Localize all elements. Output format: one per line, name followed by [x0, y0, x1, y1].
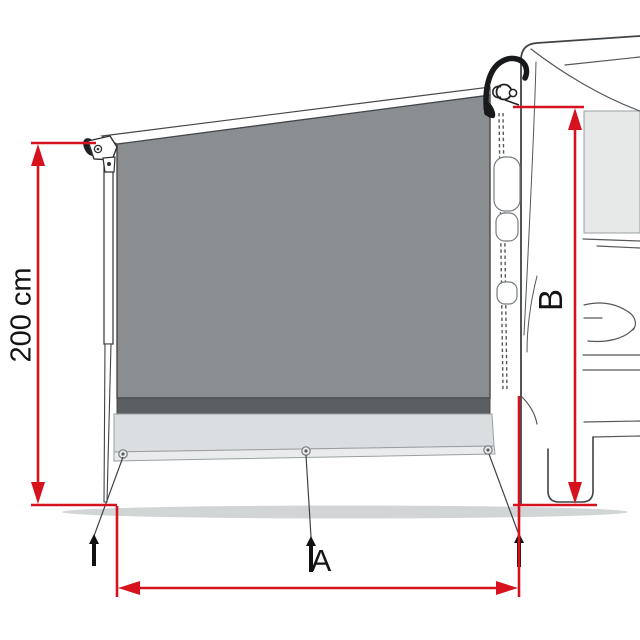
wall-mount-tabs — [494, 157, 520, 304]
zipper — [499, 113, 507, 392]
b-dimension-label: B — [532, 289, 570, 311]
tent-pegs — [89, 533, 524, 572]
panel-dark-band — [117, 398, 490, 414]
awning-panel — [102, 87, 520, 461]
a-dimension-label: A — [311, 543, 332, 579]
panel-fabric — [117, 95, 490, 398]
height-dimension-label: 200 cm — [6, 267, 39, 362]
vehicle-window — [584, 111, 640, 233]
guy-ropes — [94, 454, 519, 537]
tent-peg — [89, 534, 99, 566]
ground-shadow — [62, 506, 628, 519]
diagram-canvas: 200 cm B A — [0, 0, 640, 640]
support-leg — [104, 162, 113, 502]
leg-bracket — [83, 136, 117, 172]
guy-rope — [489, 454, 519, 535]
leg-upper-section — [104, 162, 113, 344]
leg-lower-section — [104, 344, 111, 502]
bracket-body — [88, 136, 117, 160]
panel-skirt — [114, 414, 494, 452]
guy-rope — [306, 455, 311, 537]
guy-rope — [94, 457, 123, 536]
